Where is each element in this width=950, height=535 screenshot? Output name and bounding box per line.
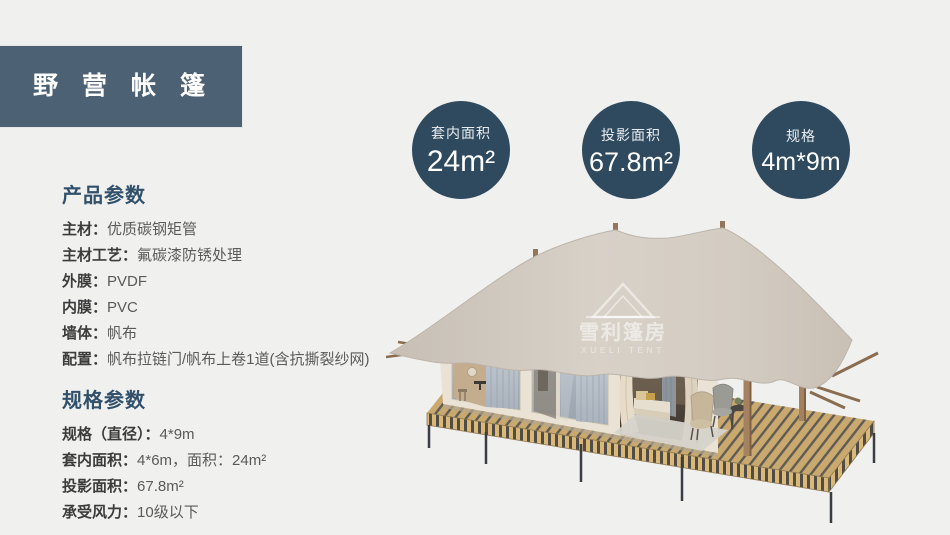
watermark-text-en: XUELI TENT bbox=[581, 345, 665, 355]
section-title: 产品参数 bbox=[62, 179, 462, 208]
badge-label: 投影面积 bbox=[601, 125, 661, 145]
badge-value: 67.8m² bbox=[589, 149, 673, 176]
page-title: 野营帐篷 bbox=[33, 74, 229, 99]
tent-product-image: 雪利篷房 XUELI TENT bbox=[380, 205, 950, 535]
badge-size: 规格 4m*9m bbox=[752, 101, 850, 199]
badge-label: 套内面积 bbox=[431, 123, 491, 143]
badge-value: 4m*9m bbox=[761, 150, 840, 175]
title-banner: 野营帐篷 bbox=[0, 46, 242, 127]
badge-value: 24m² bbox=[427, 147, 495, 177]
badge-label: 规格 bbox=[786, 126, 816, 146]
watermark-text-cn: 雪利篷房 bbox=[579, 320, 667, 344]
badge-projected-area: 投影面积 67.8m² bbox=[582, 101, 680, 199]
